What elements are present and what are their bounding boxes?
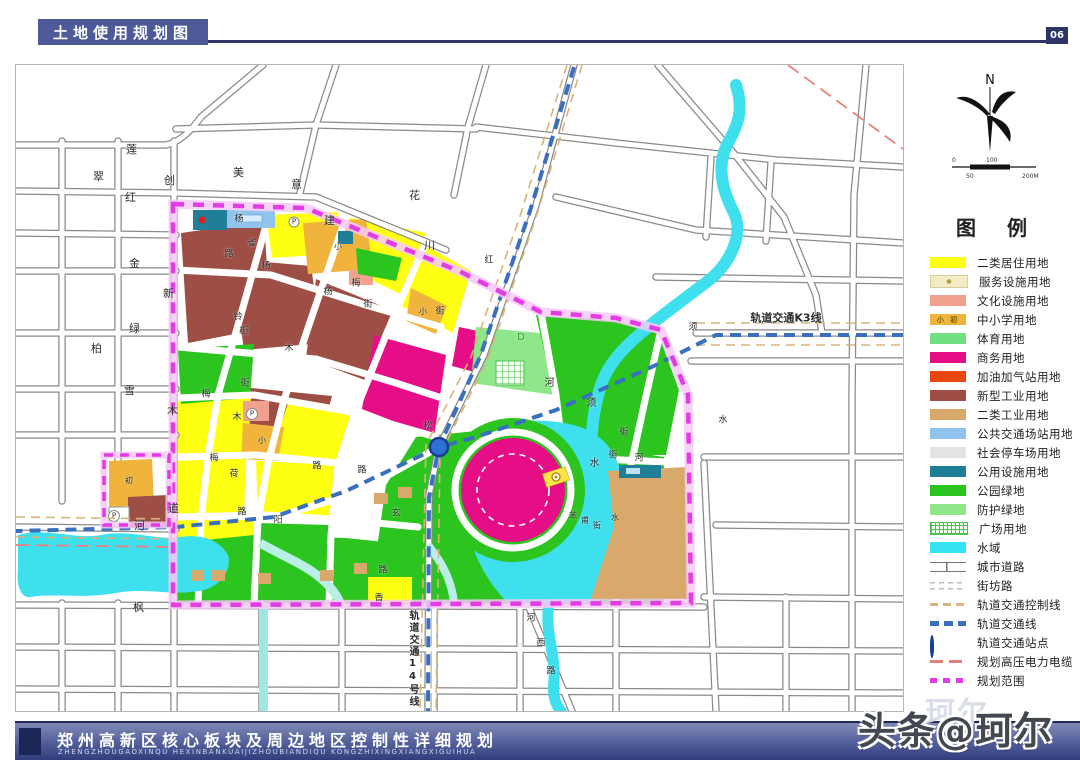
legend-label: 轨道交通站点	[977, 635, 1049, 651]
svg-text:200M: 200M	[1022, 173, 1039, 180]
school-mark: 小 初	[930, 314, 966, 325]
legend-label: 防护绿地	[977, 502, 1025, 518]
legend-swatch-solid	[930, 428, 966, 439]
legend-swatch-solid	[930, 333, 966, 344]
plan-title-pinyin: ZHENGZHOUGAOXINQU HEXINBANKUAIJIZHOUBIAN…	[58, 748, 476, 756]
legend-swatch-solid	[930, 390, 966, 401]
legend-item: 公用设施用地	[930, 462, 1078, 481]
legend-item: 新型工业用地	[930, 386, 1078, 405]
legend-heading: 图 例	[956, 212, 1078, 241]
legend-swatch-solid	[930, 447, 966, 458]
legend-swatch-plaza	[930, 522, 968, 535]
watermark: 头条@珂尔	[858, 700, 1053, 755]
legend-label: 街坊路	[977, 578, 1013, 594]
scale-bar: 0 100 50 200M	[952, 157, 1039, 180]
legend-swatch-solid	[930, 504, 966, 515]
legend-swatch-dash-sq	[930, 678, 966, 683]
legend-item: 轨道交通控制线	[930, 595, 1078, 614]
legend-item: 街坊路	[930, 576, 1078, 595]
legend-swatch-station	[930, 637, 966, 648]
svg-text:50: 50	[966, 173, 974, 180]
legend-item: 二类居住用地	[930, 253, 1078, 272]
legend-label: 公园绿地	[977, 483, 1025, 499]
planning-map: 莲翠红创美意花建川金新绿柏雪木道河枫杨雀路杨杨街铃街木梅街街木梅梅荷路阳路路玄松…	[15, 64, 904, 712]
legend-item: 城市道路	[930, 557, 1078, 576]
legend-swatch-solid	[930, 409, 966, 420]
legend-swatch-school: 小 初	[930, 314, 966, 325]
legend-label: 中小学用地	[977, 312, 1037, 328]
legend-item: 广场用地	[930, 519, 1078, 538]
legend-label: 轨道交通线	[977, 616, 1037, 632]
legend-item: 服务设施用地	[930, 272, 1078, 291]
svg-text:100: 100	[986, 157, 998, 164]
legend-item: 小 初中小学用地	[930, 310, 1078, 329]
legend-swatch-lane	[930, 582, 966, 590]
legend-item: 公共交通场站用地	[930, 424, 1078, 443]
rail-station-dot	[430, 438, 448, 456]
legend-swatch-dash-long	[930, 660, 966, 663]
compass: N 0 100 50 200M	[944, 72, 1078, 186]
legend-item: 文化设施用地	[930, 291, 1078, 310]
legend-item: 加油加气站用地	[930, 367, 1078, 386]
side-panel: N 0 100 50 200M 图 例 二类居住用地服务设施用地文化设施用地小 …	[930, 72, 1078, 690]
page-title: 土地使用规划图	[38, 19, 208, 45]
legend-item: 二类工业用地	[930, 405, 1078, 424]
legend-label: 公共交通场站用地	[977, 426, 1073, 442]
legend-label: 服务设施用地	[979, 274, 1051, 290]
legend-label: 加油加气站用地	[977, 369, 1061, 385]
legend-item: 规划高压电力电缆	[930, 652, 1078, 671]
legend-swatch-solid	[930, 352, 966, 363]
legend-swatch-dash-bold	[930, 621, 966, 626]
legend-label: 体育用地	[977, 331, 1025, 347]
planning-map-svg	[16, 65, 903, 711]
legend-label: 文化设施用地	[977, 293, 1049, 309]
north-label: N	[985, 73, 995, 88]
legend-swatch-solid	[930, 257, 966, 268]
legend-swatch-solid	[930, 295, 966, 306]
legend-swatch-service	[930, 275, 968, 288]
legend-label: 规划高压电力电缆	[977, 654, 1073, 670]
svg-text:0: 0	[952, 157, 956, 164]
legend-swatch-solid	[930, 485, 966, 496]
legend-item: 公园绿地	[930, 481, 1078, 500]
legend-label: 城市道路	[977, 559, 1025, 575]
legend-label: 公用设施用地	[977, 464, 1049, 480]
legend-label: 轨道交通控制线	[977, 597, 1061, 613]
legend-swatch-dash	[930, 603, 966, 606]
legend-item: 轨道交通线	[930, 614, 1078, 633]
legend-swatch-solid	[930, 542, 966, 553]
legend-item: 轨道交通站点	[930, 633, 1078, 652]
station-dot-icon	[930, 635, 934, 658]
west-lake	[18, 532, 229, 597]
legend-item: 社会停车场用地	[930, 443, 1078, 462]
legend-label: 新型工业用地	[977, 388, 1049, 404]
legend-label: 商务用地	[977, 350, 1025, 366]
legend-item: 防护绿地	[930, 500, 1078, 519]
legend-swatch-solid	[930, 466, 966, 477]
legend-item: 体育用地	[930, 329, 1078, 348]
legend-label: 二类居住用地	[977, 255, 1049, 271]
legend-item: 商务用地	[930, 348, 1078, 367]
legend-label: 广场用地	[979, 521, 1027, 537]
legend-swatch-road	[930, 562, 966, 572]
legend-label: 社会停车场用地	[977, 445, 1061, 461]
roundabout	[441, 418, 585, 562]
legend-label: 规划范围	[977, 673, 1025, 689]
legend-label: 水域	[977, 540, 1001, 556]
legend-list: 二类居住用地服务设施用地文化设施用地小 初中小学用地体育用地商务用地加油加气站用…	[930, 253, 1078, 690]
compass-rose-icon	[956, 91, 1016, 152]
legend-label: 二类工业用地	[977, 407, 1049, 423]
footer-accent-square	[19, 728, 41, 755]
legend-swatch-solid	[930, 371, 966, 382]
legend-item: 水域	[930, 538, 1078, 557]
page-number: 06	[1046, 27, 1068, 44]
